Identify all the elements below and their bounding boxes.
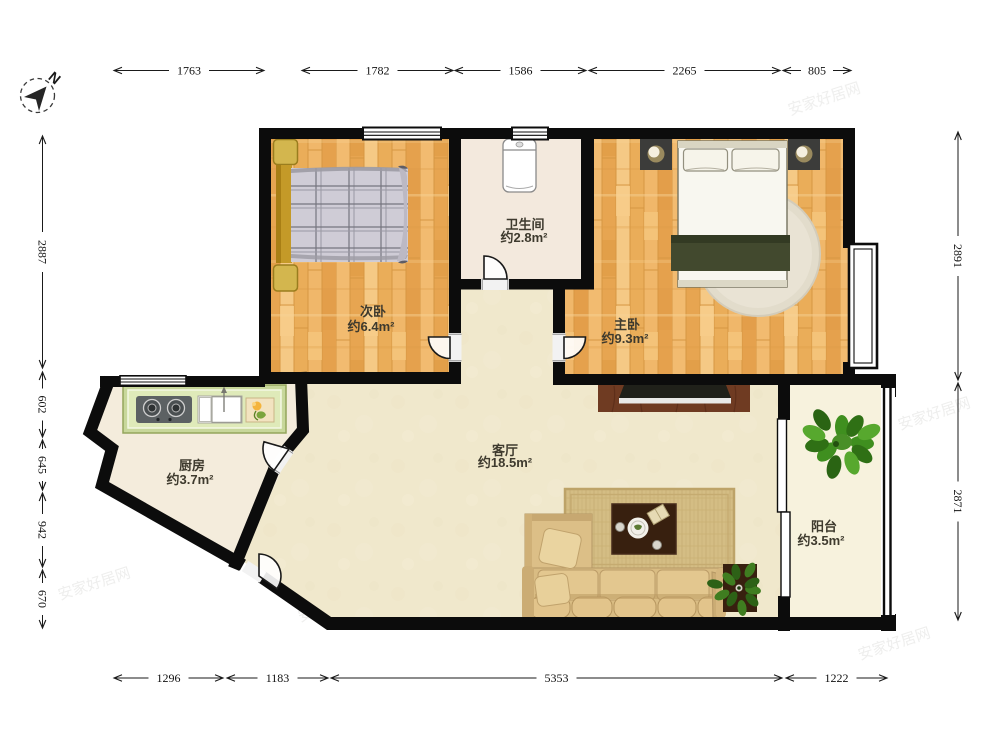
svg-text:阳台: 阳台 [811,519,837,534]
svg-text:805: 805 [808,64,826,78]
svg-text:约3.5m²: 约3.5m² [798,533,846,548]
svg-text:942: 942 [36,521,50,539]
svg-text:670: 670 [36,590,50,608]
svg-text:2891: 2891 [951,244,965,268]
svg-text:约6.4m²: 约6.4m² [348,319,396,334]
svg-text:约18.5m²: 约18.5m² [478,455,533,470]
svg-text:N: N [45,69,63,88]
svg-text:安家好居网: 安家好居网 [56,564,133,603]
svg-text:次卧: 次卧 [360,304,386,319]
svg-text:约2.8m²: 约2.8m² [501,230,549,245]
svg-text:约9.3m²: 约9.3m² [602,331,650,346]
svg-text:厨房: 厨房 [179,458,205,473]
svg-text:1183: 1183 [266,671,290,685]
svg-text:安家好居网: 安家好居网 [896,394,973,433]
svg-text:2887: 2887 [36,240,50,264]
svg-text:2265: 2265 [673,64,697,78]
svg-text:1222: 1222 [825,671,849,685]
svg-text:约3.7m²: 约3.7m² [167,472,215,487]
svg-text:1763: 1763 [177,64,201,78]
svg-text:2871: 2871 [951,490,965,514]
svg-text:1296: 1296 [157,671,181,685]
svg-text:602: 602 [36,396,50,414]
svg-text:主卧: 主卧 [614,317,640,332]
svg-text:1782: 1782 [366,64,390,78]
svg-text:5353: 5353 [545,671,569,685]
svg-text:安家好居网: 安家好居网 [786,79,863,118]
svg-text:645: 645 [36,456,50,474]
svg-text:1586: 1586 [509,64,533,78]
